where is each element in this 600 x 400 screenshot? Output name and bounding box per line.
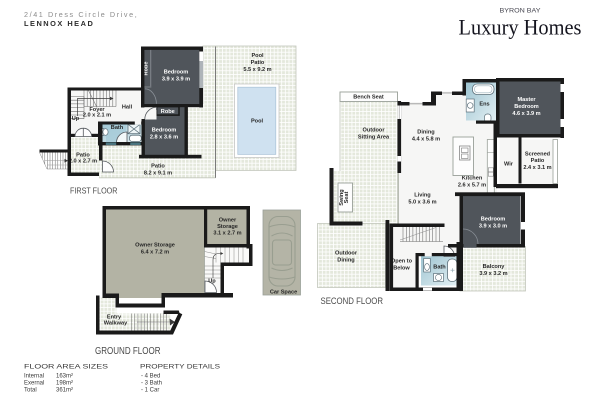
svg-text:4.4 x 5.8 m: 4.4 x 5.8 m [412,137,440,143]
svg-text:Seat: Seat [344,191,350,203]
svg-text:Up: Up [208,279,216,285]
svg-text:2/41 Dress Circle Drive,: 2/41 Dress Circle Drive, [24,10,138,19]
svg-text:FIRST FLOOR: FIRST FLOOR [70,187,118,196]
svg-text:Hall: Hall [122,105,133,111]
svg-text:Sitting Area: Sitting Area [358,135,390,141]
svg-text:5.0 x 3.6 m: 5.0 x 3.6 m [408,200,436,206]
svg-text:Dining: Dining [417,130,435,136]
svg-text:3.9 x 3.2 m: 3.9 x 3.2 m [479,271,507,277]
svg-text:Patio: Patio [531,158,545,164]
svg-text:Living: Living [414,193,431,199]
svg-text:5.5 x 9.2 m: 5.5 x 9.2 m [243,67,271,73]
svg-text:2.4 x 3.1 m: 2.4 x 3.1 m [523,165,551,171]
svg-text:Bedroom: Bedroom [514,104,539,110]
svg-text:163m²: 163m² [56,374,73,380]
svg-text:198m²: 198m² [56,381,73,387]
svg-text:Bench Seat: Bench Seat [353,94,384,100]
svg-text:Outdoor: Outdoor [362,128,385,134]
svg-text:Screened: Screened [525,152,551,158]
svg-text:Open to: Open to [391,259,413,265]
svg-text:Owner Storage: Owner Storage [135,243,175,249]
svg-text:Master: Master [517,97,536,103]
svg-text:GROUND FLOOR: GROUND FLOOR [95,346,161,357]
svg-text:Owner: Owner [219,218,237,224]
svg-text:Pool: Pool [251,119,264,125]
svg-text:Bath: Bath [111,125,124,131]
svg-text:Bedroom: Bedroom [152,128,177,134]
svg-text:Kitchen: Kitchen [462,176,483,182]
svg-text:3.9 x 3.0 m: 3.9 x 3.0 m [479,224,507,230]
svg-text:Up: Up [72,116,80,122]
svg-text:Patio: Patio [251,60,265,66]
svg-text:FLOOR AREA SIZES: FLOOR AREA SIZES [24,364,109,371]
svg-text:3.1 x 2.7 m: 3.1 x 2.7 m [213,231,241,237]
svg-text:2.6 x 5.7 m: 2.6 x 5.7 m [458,183,486,189]
svg-text:361m²: 361m² [56,388,73,394]
svg-text:Balcony: Balcony [483,264,506,270]
svg-text:Outdoor: Outdoor [335,251,358,257]
svg-text:Entry: Entry [107,314,122,320]
svg-text:6.4 x 7.2 m: 6.4 x 7.2 m [141,250,169,256]
svg-text:Walkway: Walkway [104,321,128,327]
svg-text:Exernal: Exernal [24,381,44,387]
svg-text:Pool: Pool [251,53,264,59]
svg-text:2.8 x 3.6 m: 2.8 x 3.6 m [150,135,178,141]
svg-text:- 3 Bath: - 3 Bath [141,381,162,387]
svg-text:BYRON BAY: BYRON BAY [500,8,541,15]
svg-text:Luxury Homes: Luxury Homes [459,15,582,40]
svg-text:SECOND FLOOR: SECOND FLOOR [321,296,384,306]
svg-text:Below: Below [393,266,410,272]
svg-text:- 1 Car: - 1 Car [141,388,159,394]
svg-text:- 4 Bed: - 4 Bed [141,374,160,380]
svg-text:2.0 x 2.1 m: 2.0 x 2.1 m [83,113,111,119]
svg-text:4.6 x 3.9 m: 4.6 x 3.9 m [512,111,540,117]
svg-text:Total: Total [24,388,37,394]
svg-text:3.9 x 3.9 m: 3.9 x 3.9 m [162,77,190,83]
svg-text:Ens: Ens [479,102,489,108]
svg-text:LENNOX HEAD: LENNOX HEAD [24,19,94,28]
svg-text:Internal: Internal [24,374,44,380]
svg-text:Storage: Storage [217,224,238,230]
svg-text:Patio: Patio [151,164,165,170]
svg-text:Dining: Dining [337,258,355,264]
svg-text:Bath: Bath [433,265,446,271]
svg-text:Wir: Wir [504,162,514,168]
svg-text:Bedroom: Bedroom [164,70,189,76]
svg-text:Bedroom: Bedroom [481,217,506,223]
svg-text:PROPERTY DETAILS: PROPERTY DETAILS [140,364,221,371]
svg-text:Car Space: Car Space [270,290,297,296]
svg-text:8.2 x 9.1 m: 8.2 x 9.1 m [144,171,172,177]
svg-text:2.0 x 2.7 m: 2.0 x 2.7 m [69,159,97,165]
svg-text:Robe: Robe [161,109,175,115]
